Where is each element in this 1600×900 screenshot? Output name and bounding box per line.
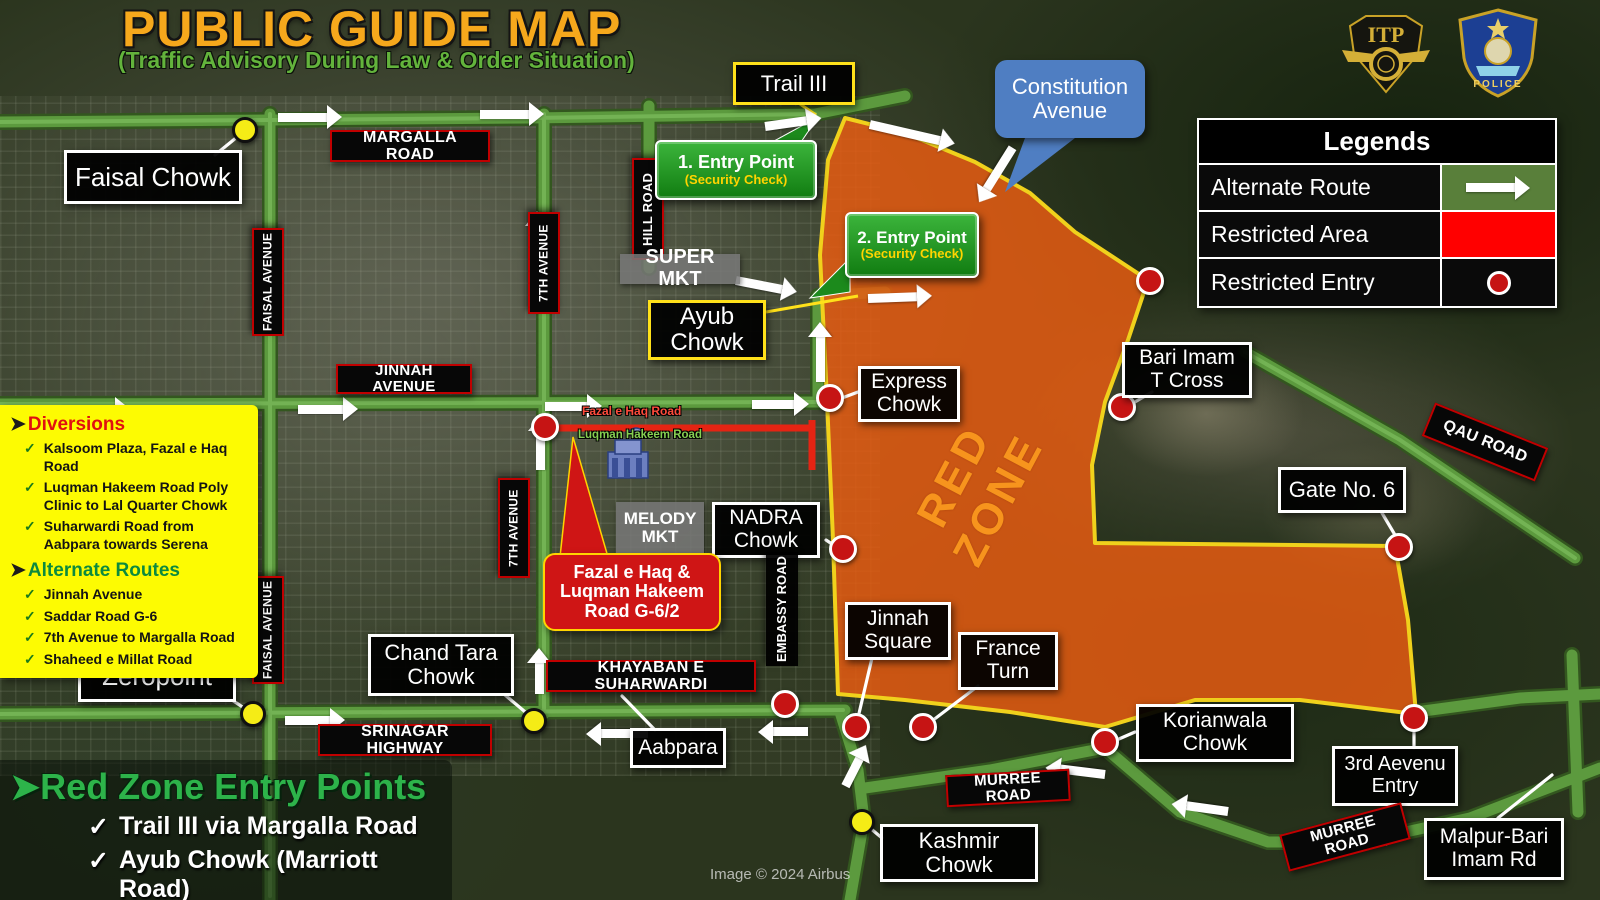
entry-point-1: 1. Entry Point (Security Check): [655, 140, 817, 200]
label-khayaban-e-suharwardi: KHAYABAN E SUHARWARDI: [546, 660, 756, 692]
legend-row-alternate-route: Alternate Route: [1199, 165, 1555, 212]
itp-logo-text: ITP: [1368, 22, 1405, 47]
bullet-icon: ➤: [10, 766, 40, 807]
label-fazal-e-haq-road: Fazal e Haq Road: [582, 404, 681, 418]
legend-label: Alternate Route: [1199, 165, 1440, 210]
label-jinnah-square: Jinnah Square: [845, 602, 951, 660]
label-3rd-avenue-entry: 3rd Aevenu Entry: [1332, 746, 1458, 806]
imagery-credit: Image © 2024 Airbus: [710, 866, 850, 883]
restricted-entry-marker: [1136, 267, 1164, 295]
red-zone-entry-points-panel: ➤Red Zone Entry Points ✓Trail III via Ma…: [0, 760, 452, 900]
entry-point-2: 2. Entry Point (Security Check): [845, 212, 979, 278]
check-icon: ✓: [24, 518, 36, 553]
check-icon: ✓: [88, 846, 109, 900]
alternate-routes-heading: ➤Alternate Routes: [10, 559, 250, 582]
red-zone-entry-points-heading: ➤Red Zone Entry Points: [10, 766, 442, 808]
alternate-route-swatch: [1440, 165, 1555, 210]
restricted-entry-marker: [829, 535, 857, 563]
label-margalla-road: MARGALLA ROAD: [330, 130, 490, 162]
check-icon: ✓: [24, 629, 36, 647]
junction-marker: [240, 701, 266, 727]
entry-point-1-title: 1. Entry Point: [678, 153, 794, 172]
restricted-entry-marker: [909, 713, 937, 741]
label-trail-iii: Trail III: [733, 62, 855, 105]
bullet-icon: ➤: [10, 414, 26, 435]
label-srinagar-highway: SRINAGAR HIGHWAY: [318, 724, 492, 756]
label-express-chowk: Express Chowk: [858, 366, 960, 422]
diversions-panel: ➤Diversions ✓Kalsoom Plaza, Fazal e Haq …: [0, 405, 258, 678]
check-icon: ✓: [88, 812, 109, 842]
page-subtitle: (Traffic Advisory During Law & Order Sit…: [118, 47, 635, 74]
check-icon: ✓: [24, 651, 36, 669]
junction-marker: [849, 809, 875, 835]
label-murree-road-center: MURREE ROAD: [945, 769, 1071, 807]
label-france-turn: France Turn: [958, 632, 1058, 690]
check-icon: ✓: [24, 440, 36, 475]
legends-panel: Legends Alternate Route Restricted Area …: [1197, 118, 1557, 308]
restricted-entry-marker: [1385, 533, 1413, 561]
label-korianwala-chowk: Korianwala Chowk: [1136, 704, 1294, 762]
route-arrow: [868, 296, 930, 298]
label-melody-mkt: MELODY MKT: [616, 502, 704, 554]
restricted-entry-swatch: [1440, 259, 1555, 306]
diversions-heading: ➤Diversions: [10, 413, 250, 436]
label-7th-avenue-lower: 7TH AVENUE: [498, 478, 530, 578]
alternate-route-item: ✓Shaheed e Millat Road: [24, 651, 250, 669]
entry-point-2-subtitle: (Security Check): [861, 247, 964, 261]
check-icon: ✓: [24, 479, 36, 514]
entry-point-1-subtitle: (Security Check): [685, 173, 788, 187]
label-jinnah-avenue: JINNAH AVENUE: [336, 364, 472, 394]
label-ayub-chowk: Ayub Chowk: [648, 300, 766, 360]
label-nadra-chowk: NADRA Chowk: [712, 502, 820, 558]
label-7th-avenue-upper: 7TH AVENUE: [528, 212, 560, 314]
alternate-route-item: ✓Jinnah Avenue: [24, 586, 250, 604]
diversion-item: ✓Luqman Hakeem Road Poly Clinic to Lal Q…: [24, 479, 250, 514]
restricted-entry-marker: [842, 713, 870, 741]
red-zone-entry-item: ✓Trail III via Margalla Road: [88, 812, 442, 842]
alternate-route-item: ✓Saddar Road G-6: [24, 608, 250, 626]
label-faisal-chowk: Faisal Chowk: [64, 150, 242, 204]
check-icon: ✓: [24, 586, 36, 604]
restricted-entry-marker: [1400, 704, 1428, 732]
restricted-entry-marker: [771, 690, 799, 718]
restricted-entry-icon: [1487, 271, 1511, 295]
public-guide-map: RED ZONE Trail III Faisal Chowk MARGALLA…: [0, 0, 1600, 900]
diversion-item: ✓Suharwardi Road from Aabpara towards Se…: [24, 518, 250, 553]
restricted-area-swatch: [1440, 212, 1555, 257]
legend-row-restricted-area: Restricted Area: [1199, 212, 1555, 259]
restricted-entry-marker: [531, 413, 559, 441]
legend-row-restricted-entry: Restricted Entry: [1199, 259, 1555, 306]
itp-logo: ITP: [1340, 6, 1432, 98]
ict-police-logo-text: POLICE: [1473, 79, 1522, 90]
label-embassy-road: EMBASSY ROAD: [766, 552, 798, 666]
legend-label: Restricted Entry: [1199, 259, 1440, 306]
label-aabpara: Aabpara: [630, 728, 726, 768]
label-malpur-bari-imam-rd: Malpur-Bari Imam Rd: [1424, 818, 1564, 880]
restricted-entry-marker: [1091, 728, 1119, 756]
label-luqman-hakeem-road: Luqman Hakeem Road: [578, 429, 702, 441]
label-chand-tara-chowk: Chand Tara Chowk: [368, 634, 514, 696]
route-arrow: [1174, 804, 1228, 812]
label-bari-imam-t-cross: Bari Imam T Cross: [1122, 342, 1252, 398]
label-faisal-avenue-upper: FAISAL AVENUE: [252, 228, 284, 336]
junction-marker: [521, 708, 547, 734]
label-gate-no-6: Gate No. 6: [1278, 467, 1406, 513]
route-arrow: [765, 118, 819, 126]
bullet-icon: ➤: [10, 560, 26, 581]
label-fazal-luqman-g62: Fazal e Haq & Luqman Hakeem Road G-6/2: [543, 553, 721, 631]
legend-label: Restricted Area: [1199, 212, 1440, 257]
ict-police-logo: POLICE: [1452, 6, 1544, 98]
entry-point-2-title: 2. Entry Point: [857, 229, 967, 247]
label-super-mkt: SUPER MKT: [620, 254, 740, 284]
legends-title: Legends: [1199, 120, 1555, 165]
alternate-route-item: ✓7th Avenue to Margalla Road: [24, 629, 250, 647]
label-kashmir-chowk: Kashmir Chowk: [880, 824, 1038, 882]
label-constitution-avenue: Constitution Avenue: [995, 60, 1145, 138]
check-icon: ✓: [24, 608, 36, 626]
diversion-item: ✓Kalsoom Plaza, Fazal e Haq Road: [24, 440, 250, 475]
junction-marker: [232, 117, 258, 143]
red-zone-entry-item: ✓Ayub Chowk (Marriott Road): [88, 846, 442, 900]
restricted-entry-marker: [816, 384, 844, 412]
